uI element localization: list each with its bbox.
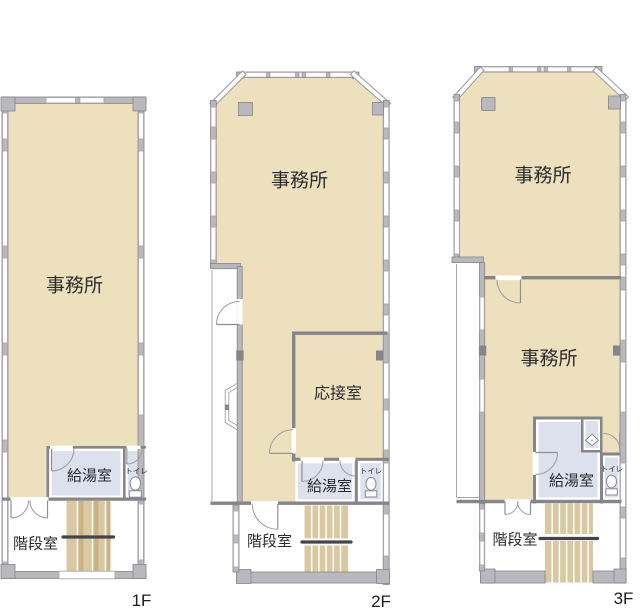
room-label-toilet-2f: トイレ [360,466,383,475]
room-label-stairwell-1f: 階段室 [13,536,58,553]
floor-label-2f: 2F [371,592,391,611]
room-label-reception-2f: 応接室 [314,385,362,403]
room-label-office-1f: 事務所 [46,275,103,297]
entrance-door-1f [59,571,115,579]
room-label-kitchen-3f: 給湯室 [549,473,594,490]
floor-label-3f: 3F [614,589,634,608]
room-label-office-2f: 事務所 [271,170,328,192]
floor-plan-2f: 事務所 応接室 給湯室 トイレ 階段室 2F [211,72,391,611]
stairwell-double-door-1f [11,497,49,518]
room-label-kitchen-1f: 給湯室 [67,468,112,485]
floor-plan-1f: 事務所 給湯室 トイレ 階段室 1F [1,97,151,610]
stairwell-door-2f [251,501,278,529]
room-label-stairwell-2f: 階段室 [247,533,292,550]
room-label-office-lower-3f: 事務所 [520,348,577,370]
column-2f [239,103,253,116]
floor-plan-canvas: 事務所 給湯室 トイレ 階段室 1F [0,0,640,614]
balcony-door-2f [217,299,243,325]
room-label-toilet-1f: トイレ [125,466,148,475]
room-fills-1f [7,102,139,501]
toilet-icon-1f [129,477,141,497]
toilet-icon-3f [606,475,618,495]
room-label-stairwell-3f: 階段室 [492,532,537,549]
room-label-kitchen-2f: 給湯室 [307,478,352,495]
balcony-strip-3f [457,264,481,498]
room-label-office-upper-3f: 事務所 [514,165,571,187]
floor-label-1f: 1F [132,591,152,610]
column-3f [482,98,496,111]
stairs-3f [540,504,598,583]
toilet-icon-2f [365,477,377,497]
room-label-toilet-3f: トイレ [601,465,624,474]
stairs-2f [302,506,351,573]
stairs-1f [63,501,114,572]
balcony-strip-2f [212,270,240,501]
floor-plan-3f: 事務所 事務所 給湯室 トイレ 階段室 3F [452,67,633,609]
floor-plan-page: 事務所 給湯室 トイレ 階段室 1F [0,0,640,614]
stairwell-double-door-3f [505,499,531,514]
